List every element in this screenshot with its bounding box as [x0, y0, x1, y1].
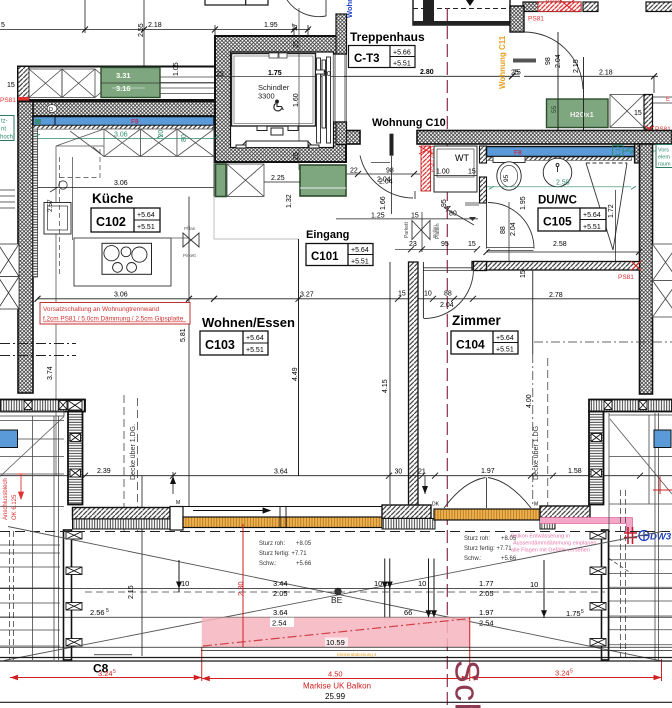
- svg-text:2.25: 2.25: [271, 175, 285, 182]
- svg-text:25: 25: [293, 152, 300, 160]
- svg-text:1.72: 1.72: [608, 204, 615, 218]
- svg-text:2.39: 2.39: [97, 468, 111, 475]
- svg-text:5: 5: [1, 22, 5, 29]
- svg-text:H2Ox1: H2Ox1: [570, 110, 594, 119]
- svg-text:10: 10: [374, 579, 382, 588]
- svg-text:15: 15: [398, 291, 406, 298]
- svg-text:PS81: PS81: [618, 274, 634, 281]
- svg-text:Pfilan: Pfilan: [184, 226, 196, 231]
- svg-text:98: 98: [545, 57, 552, 65]
- svg-text:Pirkett: Pirkett: [183, 253, 197, 258]
- svg-text:10.59: 10.59: [326, 638, 345, 647]
- svg-text:1.77: 1.77: [479, 579, 494, 588]
- svg-text:PS81: PS81: [528, 16, 544, 23]
- svg-text:+8.05: +8.05: [296, 541, 312, 547]
- svg-text:10: 10: [418, 579, 426, 588]
- svg-text:DU/WC: DU/WC: [538, 195, 577, 207]
- svg-text:M: M: [534, 502, 538, 508]
- svg-text:Klinkerabdeckung 4: Klinkerabdeckung 4: [337, 652, 377, 657]
- svg-text:+5.64: +5.64: [496, 335, 514, 342]
- svg-text:2.54: 2.54: [272, 619, 287, 628]
- svg-text:25: 25: [293, 40, 300, 48]
- svg-text:2.58: 2.58: [553, 241, 567, 248]
- svg-text:2.58: 2.58: [556, 180, 570, 187]
- svg-text:2.04: 2.04: [510, 222, 517, 236]
- svg-text:Eingang: Eingang: [306, 229, 349, 241]
- svg-text:BE: BE: [331, 595, 343, 605]
- svg-text:Sturz fertig: +7.71: Sturz fertig: +7.71: [259, 551, 307, 557]
- svg-text:88: 88: [500, 226, 507, 234]
- svg-text:1.66: 1.66: [380, 196, 387, 210]
- svg-text:1.75: 1.75: [566, 609, 581, 618]
- svg-text:Schw.:: Schw.:: [464, 556, 482, 562]
- svg-text:25: 25: [216, 71, 224, 78]
- svg-text:2.80: 2.80: [420, 69, 434, 76]
- svg-text:+5.51: +5.51: [246, 347, 264, 354]
- svg-text:20: 20: [323, 71, 331, 78]
- svg-text:95: 95: [441, 199, 448, 207]
- svg-text:hoch: hoch: [0, 135, 13, 141]
- svg-text:Wohnen/Essen: Wohnen/Essen: [202, 315, 295, 330]
- svg-text:20: 20: [158, 130, 165, 138]
- svg-text:2.54: 2.54: [479, 619, 494, 628]
- svg-text:C104: C104: [456, 338, 485, 352]
- svg-text:C101: C101: [311, 251, 339, 263]
- svg-text:+5.51: +5.51: [393, 61, 411, 68]
- svg-text:Decke über 1.DG.: Decke über 1.DG.: [130, 424, 137, 480]
- svg-text:1.05: 1.05: [173, 62, 180, 76]
- svg-text:OK 6.125: OK 6.125: [12, 494, 18, 520]
- svg-text:88: 88: [444, 291, 452, 298]
- svg-text:15: 15: [634, 110, 642, 117]
- svg-text:2.18: 2.18: [599, 70, 613, 77]
- svg-text:1.95: 1.95: [264, 22, 278, 29]
- svg-text:+5.64: +5.64: [137, 212, 155, 219]
- svg-text:3.44: 3.44: [273, 579, 288, 588]
- svg-text:1.75: 1.75: [268, 70, 282, 77]
- svg-text:21: 21: [418, 469, 426, 476]
- svg-text:3.74: 3.74: [47, 366, 54, 380]
- svg-text:2.15: 2.15: [573, 59, 580, 73]
- svg-text:2.78: 2.78: [549, 292, 563, 299]
- svg-text:1.97: 1.97: [481, 468, 495, 475]
- svg-text:+5.51: +5.51: [137, 224, 155, 231]
- svg-text:DK: DK: [432, 502, 440, 508]
- svg-text:3300: 3300: [258, 92, 275, 101]
- svg-text:Wohnung C10: Wohnung C10: [372, 117, 446, 129]
- svg-text:2.56: 2.56: [90, 608, 105, 617]
- svg-text:5.81: 5.81: [180, 328, 187, 342]
- svg-text:Aussendämmdämmung einplanen: Aussendämmdämmung einplanen: [513, 541, 596, 547]
- svg-text:Decke über 1.DG: Decke über 1.DG: [533, 426, 540, 480]
- svg-text:Sturz roh:: Sturz roh:: [464, 536, 490, 542]
- svg-text:5: 5: [106, 608, 109, 614]
- svg-text:Wxxxxx: Wxxxxx: [545, 0, 563, 4]
- svg-text:2.18: 2.18: [148, 22, 162, 29]
- svg-text:Wohnung C11: Wohnung C11: [498, 35, 507, 89]
- svg-text:+8.05: +8.05: [501, 536, 517, 542]
- svg-text:95: 95: [503, 174, 510, 182]
- svg-text:80: 80: [181, 134, 188, 142]
- svg-text:3.06: 3.06: [114, 132, 128, 139]
- svg-text:F8: F8: [514, 150, 522, 157]
- svg-text:+5.64: +5.64: [583, 212, 601, 219]
- svg-text:D: D: [49, 107, 53, 113]
- svg-text:2.57: 2.57: [47, 199, 54, 212]
- svg-text:Markise UK Balkon: Markise UK Balkon: [303, 682, 371, 691]
- svg-text:M: M: [176, 500, 180, 506]
- svg-text:10: 10: [181, 579, 189, 588]
- svg-text:4.15: 4.15: [382, 379, 389, 393]
- svg-text:F8: F8: [131, 119, 139, 126]
- svg-text:2.05: 2.05: [479, 589, 494, 598]
- svg-text:+5.66: +5.66: [501, 556, 517, 562]
- svg-text:15: 15: [468, 241, 476, 248]
- svg-text:Sturz fertig: +7.71: Sturz fertig: +7.71: [464, 546, 512, 552]
- svg-text:tz-: tz-: [1, 119, 8, 125]
- svg-text:1.14: 1.14: [616, 144, 622, 156]
- svg-text:15: 15: [411, 213, 419, 220]
- svg-text:Sturz roh:: Sturz roh:: [259, 541, 285, 547]
- svg-text:2.55: 2.55: [138, 23, 145, 37]
- svg-text:95: 95: [441, 241, 449, 248]
- svg-text:1.97: 1.97: [479, 608, 494, 617]
- svg-text:3.64: 3.64: [274, 469, 288, 476]
- svg-text:3.24: 3.24: [98, 669, 113, 678]
- svg-text:15: 15: [520, 270, 527, 278]
- svg-text:f.2cm PS81 / 5.0cm Dämmung / 2: f.2cm PS81 / 5.0cm Dämmung / 2.5cm Gipsp…: [43, 316, 184, 323]
- svg-text:2.30: 2.30: [236, 581, 245, 596]
- svg-text:15: 15: [7, 82, 15, 89]
- svg-text:10: 10: [424, 291, 432, 298]
- svg-text:WT: WT: [455, 153, 469, 163]
- svg-text:Treppenhaus: Treppenhaus: [350, 30, 425, 44]
- svg-text:+5.66: +5.66: [296, 561, 312, 567]
- svg-text:Parkett: Parkett: [404, 222, 410, 238]
- svg-text:1.00: 1.00: [436, 169, 450, 176]
- svg-text:4.50: 4.50: [328, 670, 343, 679]
- svg-text:25.99: 25.99: [325, 692, 346, 701]
- svg-text:Zimmer: Zimmer: [452, 313, 502, 328]
- svg-text:22: 22: [350, 168, 358, 175]
- svg-text:+5.51: +5.51: [583, 224, 601, 231]
- svg-text:4.00: 4.00: [526, 394, 533, 408]
- svg-text:1.58: 1.58: [568, 468, 582, 475]
- svg-text:3.06: 3.06: [114, 180, 128, 187]
- svg-text:+5.51: +5.51: [351, 259, 369, 266]
- svg-text:C-T3: C-T3: [354, 53, 380, 65]
- svg-text:C105: C105: [543, 215, 572, 229]
- svg-text:4.49: 4.49: [292, 367, 299, 381]
- svg-text:Schw.:: Schw.:: [259, 561, 277, 567]
- svg-text:raum: raum: [658, 162, 671, 168]
- svg-text:Vors: Vors: [658, 148, 669, 154]
- svg-text:Rollan: Rollan: [432, 225, 437, 238]
- svg-text:1.25: 1.25: [371, 213, 385, 220]
- svg-text:+5.66: +5.66: [393, 50, 411, 57]
- svg-text:elem: elem: [658, 155, 670, 161]
- svg-text:55: 55: [551, 105, 558, 113]
- svg-text:10: 10: [530, 580, 538, 589]
- svg-text:5: 5: [581, 609, 584, 615]
- svg-text:30: 30: [395, 469, 403, 476]
- svg-text:5: 5: [570, 669, 573, 675]
- svg-text:5: 5: [113, 669, 116, 675]
- svg-text:3.64: 3.64: [273, 608, 288, 617]
- svg-text:1.95: 1.95: [520, 196, 527, 210]
- svg-text:2.15: 2.15: [128, 585, 135, 599]
- svg-text:Vorsatzschallung an Wohnungtre: Vorsatzschallung an Wohnungtrennwand: [43, 306, 160, 313]
- svg-text:3.24: 3.24: [555, 669, 570, 678]
- svg-text:98: 98: [386, 168, 394, 175]
- svg-text:2.04: 2.04: [555, 54, 562, 68]
- svg-text:Balkon Entwässerung in: Balkon Entwässerung in: [511, 534, 570, 540]
- svg-text:+5.51: +5.51: [496, 347, 514, 354]
- svg-text:alle Flagen mit Gefälle verseh: alle Flagen mit Gefälle versehen: [511, 548, 590, 554]
- svg-text:+5.64: +5.64: [351, 247, 369, 254]
- svg-text:3.31: 3.31: [116, 71, 131, 80]
- svg-text:25: 25: [511, 70, 519, 77]
- svg-text:PS81: PS81: [0, 97, 16, 104]
- svg-text:C103: C103: [205, 338, 235, 352]
- svg-text:3.27: 3.27: [300, 292, 314, 299]
- svg-text:2.04: 2.04: [440, 302, 454, 309]
- svg-text:Küche: Küche: [92, 191, 134, 206]
- svg-text:66: 66: [404, 608, 412, 617]
- svg-text:15: 15: [468, 169, 476, 176]
- svg-text:Anschlussblech: Anschlussblech: [3, 478, 9, 520]
- svg-text:2.04: 2.04: [379, 179, 393, 186]
- svg-text:17: 17: [292, 23, 299, 31]
- svg-text:Schnitt: Schnitt: [448, 660, 486, 708]
- svg-text:+5.64: +5.64: [246, 335, 264, 342]
- svg-text:3.06: 3.06: [114, 292, 128, 299]
- svg-text:2.05: 2.05: [273, 589, 288, 598]
- svg-text:3.16: 3.16: [116, 84, 131, 93]
- svg-text:E: E: [666, 97, 670, 103]
- svg-text:nt: nt: [1, 127, 6, 133]
- svg-text:1.32: 1.32: [286, 194, 293, 208]
- svg-text:C102: C102: [96, 215, 126, 229]
